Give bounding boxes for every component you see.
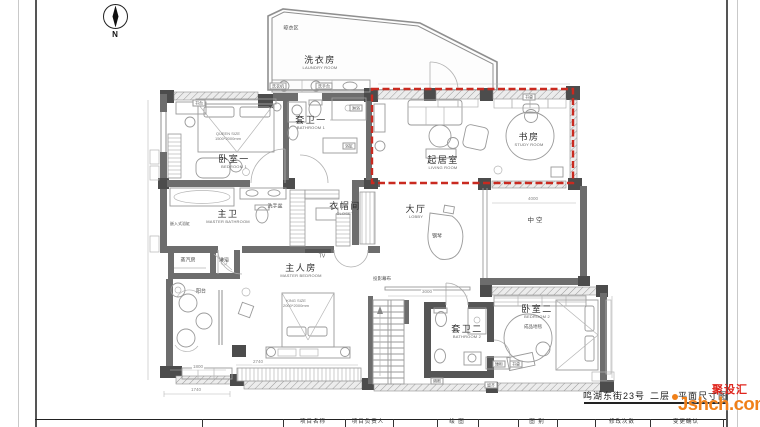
title-block-divider — [393, 419, 394, 427]
living-room-furniture — [374, 99, 489, 158]
frame-line-right-outer — [737, 0, 738, 427]
north-compass-icon — [103, 4, 128, 29]
plan-linework — [0, 0, 760, 427]
lobby-furniture — [428, 205, 463, 259]
annotation-washer: 洗衣机 — [270, 83, 287, 90]
room-label-study: 书房 STUDY ROOM — [514, 133, 543, 148]
annotation-carpet: 成品地毯 — [524, 325, 542, 330]
annotation-shower-master: 淋浴 — [219, 259, 229, 264]
annotation-builtin-tub: 嵌入式浴缸 — [170, 222, 190, 226]
title-block-cell-project-lead: 项目负责人 — [352, 420, 385, 426]
room-label-closet: 衣帽间 CLOSET — [329, 202, 361, 217]
annotation-desk-bedroom2: 书桌 — [510, 361, 523, 368]
bed-spec-king: KING SIZE 2000*2000mm — [283, 298, 309, 308]
annotation-steam-room: 蒸汽房 — [180, 259, 195, 264]
title-block-divider — [723, 419, 724, 427]
room-label-living-room: 起居室 LIVING ROOM — [427, 156, 459, 171]
annotation-balcony: 阳台 — [196, 290, 206, 295]
annotation-bathtub-bath1: 浴缸 — [343, 143, 356, 150]
closet-furniture — [290, 190, 375, 253]
title-block-divider — [202, 419, 203, 427]
stairs — [373, 300, 404, 384]
dimension-3000: 3000 — [421, 290, 433, 295]
annotation-flush-note: 留齐 — [485, 382, 498, 389]
title-block-divider — [518, 419, 519, 427]
laundry-glass-wing — [268, 9, 497, 90]
title-block-divider — [595, 419, 596, 427]
annotation-shower-bath1: 淋浴 — [350, 105, 363, 112]
title-block-divider — [345, 419, 346, 427]
title-block-cell-drafter: 绘 图 — [449, 420, 465, 426]
title-block-divider — [437, 419, 438, 427]
dimension-2740: 2740 — [252, 360, 264, 365]
dimension-1800: 1800 — [192, 365, 204, 370]
annotation-washbasin: 洗手盆 — [267, 205, 282, 210]
bed-spec-queen: QUEEN SIZE 1500*2000mm — [215, 131, 241, 141]
annotation-partition: 隔断 — [431, 378, 444, 385]
annotation-low-cabinet: 矮柜 — [493, 361, 506, 368]
sheet-title-part2: 二层 — [650, 391, 670, 401]
annotation-desk-study: 书桌 — [523, 94, 536, 101]
annotation-tv: TV — [319, 255, 325, 260]
frame-line-left-inner — [35, 0, 37, 427]
watermark-site-logo: Jshch.com — [678, 395, 760, 414]
title-block-divider — [283, 419, 284, 427]
title-block-cell-project-name: 项目名称 — [300, 420, 326, 426]
compass-north-label: N — [112, 31, 118, 39]
title-block-cell-drawing-type: 图 别 — [529, 420, 545, 426]
annotation-sink-counter: 洗手台 — [316, 83, 333, 90]
room-label-lobby: 大厅 LOBBY — [405, 205, 426, 220]
frame-line-left-outer — [18, 0, 19, 427]
annotation-projector-screen: 投影幕布 — [373, 277, 391, 282]
frame-line-right-inner — [726, 0, 728, 427]
dimension-4000: 4000 — [527, 197, 539, 202]
sheet-title-part1: 鸣湖东街23号 — [583, 391, 645, 401]
annotation-writing-desk: 书台 — [193, 100, 206, 107]
dimension-1740: 1740 — [190, 388, 202, 393]
title-block-cell-revision-count: 修改次数 — [609, 420, 635, 426]
title-block-divider — [650, 419, 651, 427]
title-block-divider — [557, 419, 558, 427]
room-label-master-bathroom: 主卫 MASTER BATHROOM — [206, 210, 250, 225]
title-block-divider — [478, 419, 479, 427]
room-label-laundry: 洗衣房 LAUNDRY ROOM — [303, 56, 338, 71]
room-label-bedroom1: 卧室一 BEDROOM 1 — [218, 155, 250, 170]
room-label-bedroom2: 卧室二 BEDROOM 2 — [521, 305, 553, 320]
room-label-master-bedroom: 主人房 MASTER BEDROOM — [280, 264, 321, 279]
compass-needle-icon — [104, 5, 127, 28]
floor-plan-sheet: N 洗衣房 LAUNDRY ROOM 套卫一 BATHROOM 1 卧室一 BE… — [0, 0, 760, 427]
room-label-bathroom2: 套卫二 BATHROOM 2 — [451, 325, 483, 340]
annotation-drying-area: 晾衣区 — [283, 27, 298, 32]
room-label-bathroom1: 套卫一 BATHROOM 1 — [295, 116, 327, 131]
annotation-void: 中空 — [528, 218, 545, 225]
annotation-piano: 钢琴 — [432, 235, 442, 240]
title-block-cell-change-confirm: 变更确认 — [673, 420, 699, 426]
